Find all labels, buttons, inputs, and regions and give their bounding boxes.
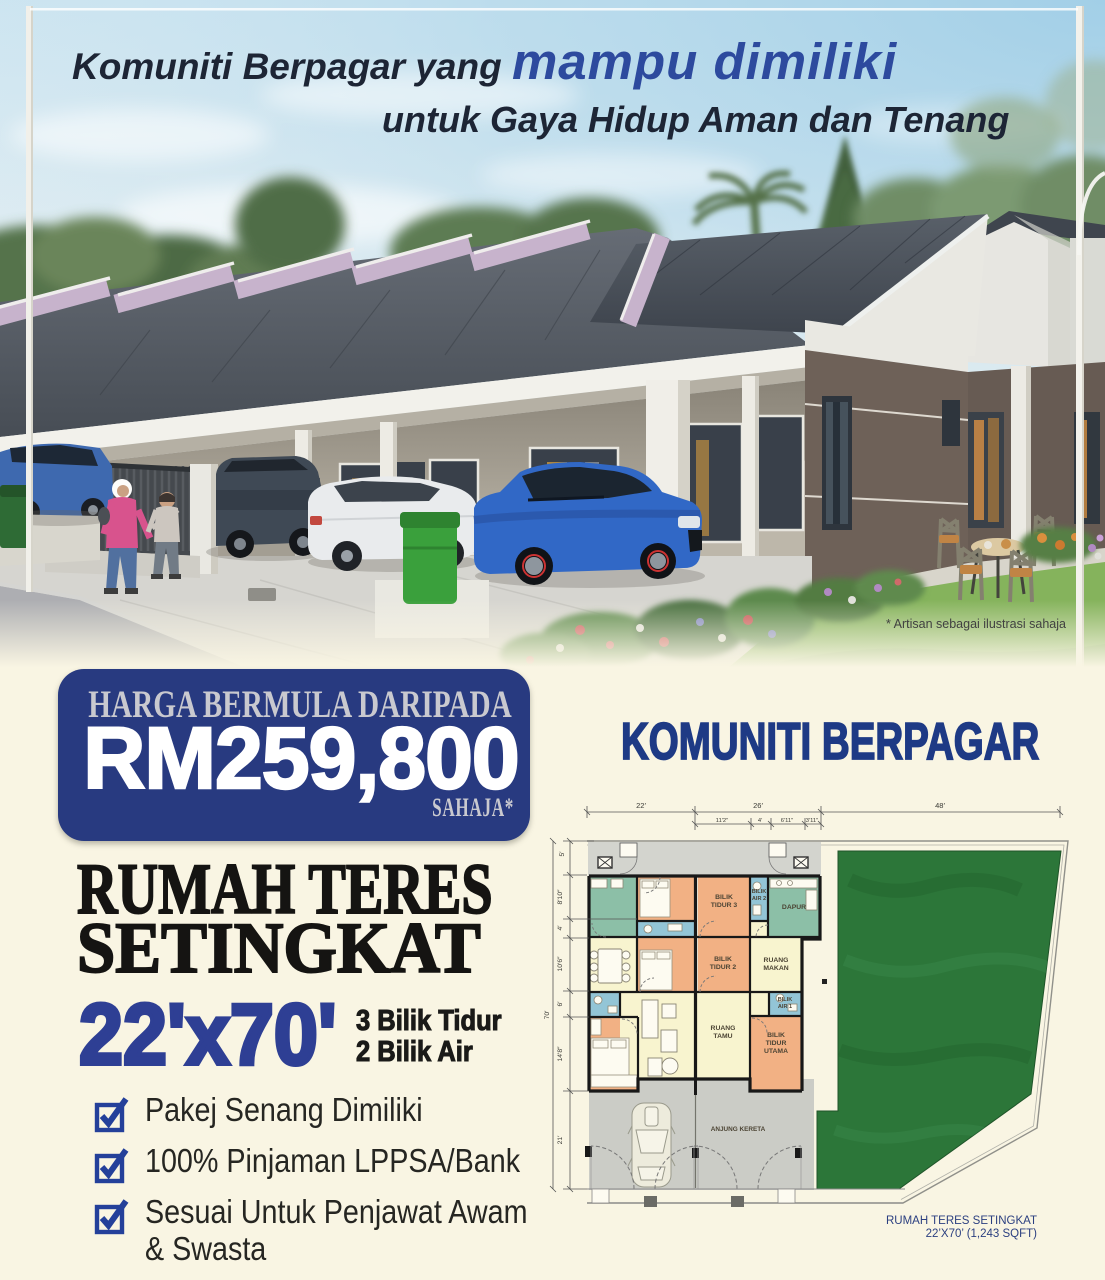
svg-text:10′6″: 10′6″ — [557, 956, 564, 972]
svg-text:5′: 5′ — [559, 851, 566, 857]
svg-text:48′: 48′ — [935, 801, 945, 810]
svg-text:70′: 70′ — [544, 1010, 551, 1020]
svg-text:ANJUNG KERETA: ANJUNG KERETA — [711, 1126, 766, 1133]
svg-text:MAKAN: MAKAN — [763, 965, 788, 972]
svg-text:14′8″: 14′8″ — [557, 1046, 564, 1062]
svg-text:26′: 26′ — [753, 801, 763, 810]
svg-text:AIR 1: AIR 1 — [778, 1004, 792, 1010]
svg-text:BILIK: BILIK — [715, 894, 733, 901]
svg-text:8′10″: 8′10″ — [557, 889, 564, 905]
svg-text:TIDUR 2: TIDUR 2 — [710, 964, 737, 971]
svg-text:BILIK: BILIK — [778, 997, 793, 1003]
svg-text:UTAMA: UTAMA — [764, 1048, 788, 1055]
svg-text:TAMU: TAMU — [713, 1033, 732, 1040]
svg-text:4′: 4′ — [557, 925, 564, 931]
svg-text:6′11″: 6′11″ — [781, 818, 793, 824]
svg-text:3′11″: 3′11″ — [806, 818, 818, 824]
svg-text:22′: 22′ — [636, 801, 646, 810]
svg-text:BILIK: BILIK — [714, 956, 732, 963]
svg-text:4′: 4′ — [758, 818, 762, 824]
svg-text:* Artisan sebagai ilustrasi sa: * Artisan sebagai ilustrasi sahaja — [886, 617, 1066, 631]
svg-text:21′: 21′ — [557, 1135, 564, 1145]
svg-text:TIDUR: TIDUR — [766, 1040, 787, 1047]
svg-text:BILIK: BILIK — [752, 889, 767, 895]
svg-text:BILIK: BILIK — [767, 1032, 785, 1039]
svg-text:RUANG: RUANG — [764, 957, 789, 964]
svg-text:AIR 2: AIR 2 — [752, 896, 766, 902]
svg-text:RUANG: RUANG — [711, 1025, 736, 1032]
svg-text:DAPUR: DAPUR — [782, 904, 806, 911]
svg-text:11′2″: 11′2″ — [716, 818, 728, 824]
svg-text:TIDUR 3: TIDUR 3 — [711, 902, 738, 909]
svg-text:6′: 6′ — [557, 1001, 564, 1007]
